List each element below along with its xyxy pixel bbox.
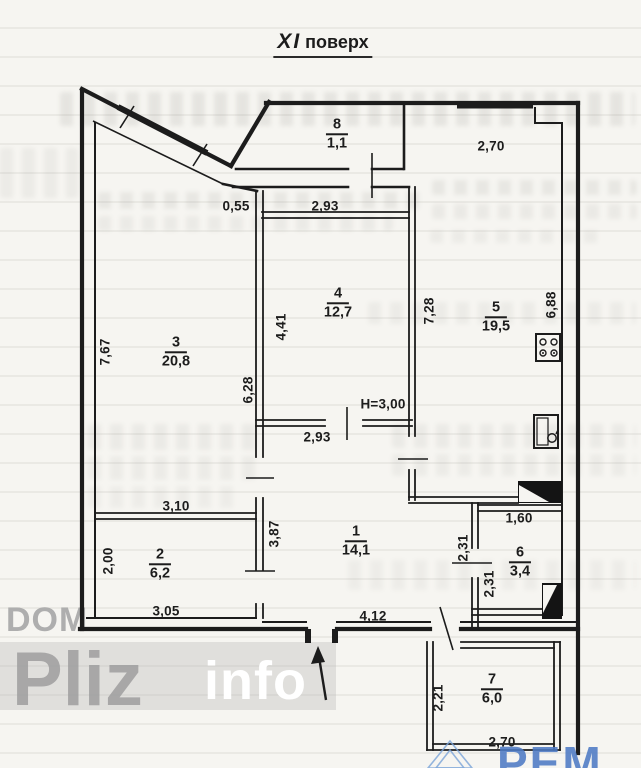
room-label-1: 1 14,1 — [342, 523, 370, 558]
room-area: 6,0 — [481, 692, 503, 707]
dim-label: 2,21 — [431, 684, 446, 711]
page-title: ХІповерх — [273, 30, 372, 58]
dim-label: 4,41 — [274, 313, 289, 340]
room-number: 8 — [326, 117, 348, 135]
room-area: 6,2 — [149, 567, 171, 582]
ceiling-height-label: Н=3,00 — [360, 397, 405, 412]
dim-label: 6,88 — [544, 291, 559, 318]
dim-label: 4,12 — [359, 609, 386, 624]
room-area: 20,8 — [162, 355, 190, 370]
dim-label: 1,60 — [505, 511, 532, 526]
dim-label: 3,05 — [152, 604, 179, 619]
dim-label: 2,31 — [456, 534, 471, 561]
dim-label: 2,31 — [482, 570, 497, 597]
room-label-4: 4 12,7 — [324, 285, 352, 320]
room-label-2: 2 6,2 — [149, 546, 171, 581]
dim-label: 7,67 — [98, 338, 113, 365]
outer-walls — [80, 89, 578, 753]
room-number: 6 — [509, 545, 531, 563]
room-number: 3 — [165, 335, 187, 353]
room-area: 12,7 — [324, 306, 352, 321]
dim-label: 2,70 — [477, 139, 504, 154]
room8-walls — [223, 103, 409, 191]
floor-number: ХІ — [277, 30, 301, 53]
dim-label: 2,93 — [311, 199, 338, 214]
inner-wall-faces — [87, 108, 578, 622]
dim-label: 3,10 — [162, 499, 189, 514]
entrance-door — [305, 629, 338, 643]
room-label-8: 8 1,1 — [326, 116, 348, 151]
room-number: 1 — [345, 524, 367, 542]
room-area: 1,1 — [326, 137, 348, 152]
floor-word: поверх — [305, 32, 368, 52]
entrance-arrow-icon — [311, 646, 326, 700]
watermark-logo-triangle — [428, 741, 472, 768]
dim-label: 2,93 — [303, 430, 330, 445]
room-number: 4 — [327, 286, 349, 304]
room-number: 2 — [149, 547, 171, 565]
room-area: 14,1 — [342, 544, 370, 559]
room-label-3: 3 20,8 — [162, 334, 190, 369]
dim-label: 3,87 — [267, 520, 282, 547]
room-number: 7 — [481, 672, 503, 690]
room-area: 19,5 — [482, 320, 510, 335]
floor-plan-drawing — [0, 0, 641, 768]
room-label-7: 7 6,0 — [481, 671, 503, 706]
dim-label: 2,00 — [101, 547, 116, 574]
scanned-floor-plan-page: DOM Pliz info — [0, 0, 641, 768]
partition-walls — [95, 187, 562, 750]
room-label-5: 5 19,5 — [482, 299, 510, 334]
room-number: 5 — [485, 300, 507, 318]
dim-label: 0,55 — [222, 199, 249, 214]
window-diagonal — [93, 106, 223, 184]
dim-label: 6,28 — [241, 376, 256, 403]
room-label-6: 6 3,4 — [509, 544, 531, 579]
room-area: 3,4 — [509, 565, 531, 580]
watermark-rem: РЕМ — [497, 736, 603, 768]
dim-label: 7,28 — [422, 297, 437, 324]
stove-icon — [536, 334, 560, 361]
sink-icon — [534, 415, 558, 448]
